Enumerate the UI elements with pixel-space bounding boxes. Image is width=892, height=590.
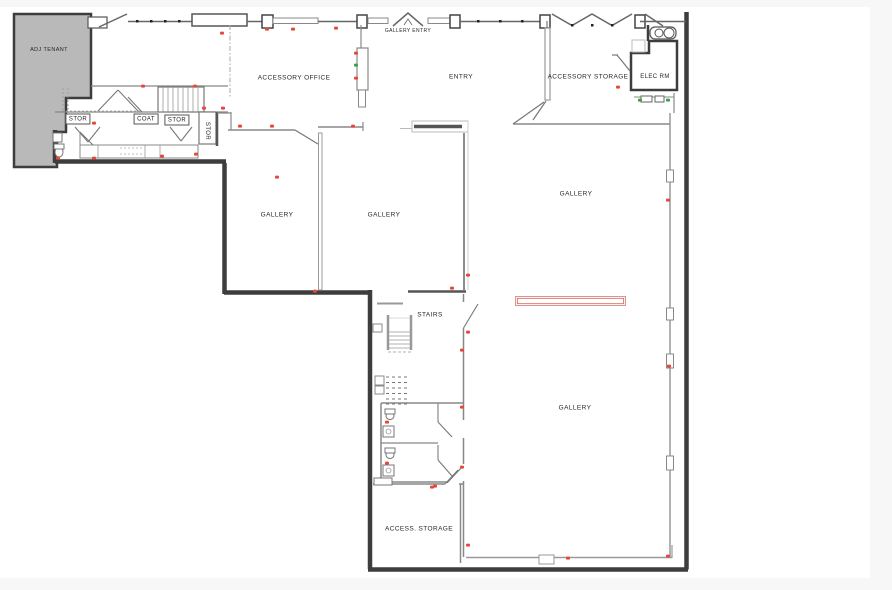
door-swing [295,130,318,144]
pilaster [667,456,674,470]
sink-icon [383,465,394,476]
door-swing [533,101,546,120]
entry-zone-walls [230,21,550,120]
outer-walls [55,12,688,570]
stair-enclosure [388,315,411,350]
window [428,18,450,24]
door-swing [464,304,479,328]
storefront-wall [99,13,686,28]
new-wall-partition [515,296,626,306]
gallery-divider-wall [319,133,323,290]
sink-icon [53,133,62,142]
door-swing [445,470,458,484]
door-swing [645,14,663,26]
door-swing [170,127,192,141]
gallery-band-walls [228,102,670,290]
door-swing [513,102,544,124]
floorplan-page: ADJ TENANTACCESSORY OFFICEGALLERY ENTRYE… [0,0,892,590]
sink-icon [383,426,394,437]
pilaster [357,48,368,90]
door-swing [438,460,452,476]
stair-treads [389,332,410,348]
folding-doors [552,14,632,26]
door-swing [128,97,142,112]
stor-room [199,112,216,144]
pilaster [667,170,674,182]
window [368,18,388,24]
shelf [374,478,392,485]
pilaster [667,354,674,368]
window [273,18,318,24]
panel [655,96,664,102]
door-swing [447,467,462,483]
panel [641,96,652,102]
door-swing [617,55,630,71]
door-swing [438,422,452,437]
stairs-restrooms [373,292,478,564]
floorplan-linework [0,0,892,590]
pilaster [667,308,674,320]
big-gallery-walls [466,113,674,564]
future-stair-dashed [386,377,407,404]
stair-existing [158,87,204,112]
elec-room [612,25,677,113]
